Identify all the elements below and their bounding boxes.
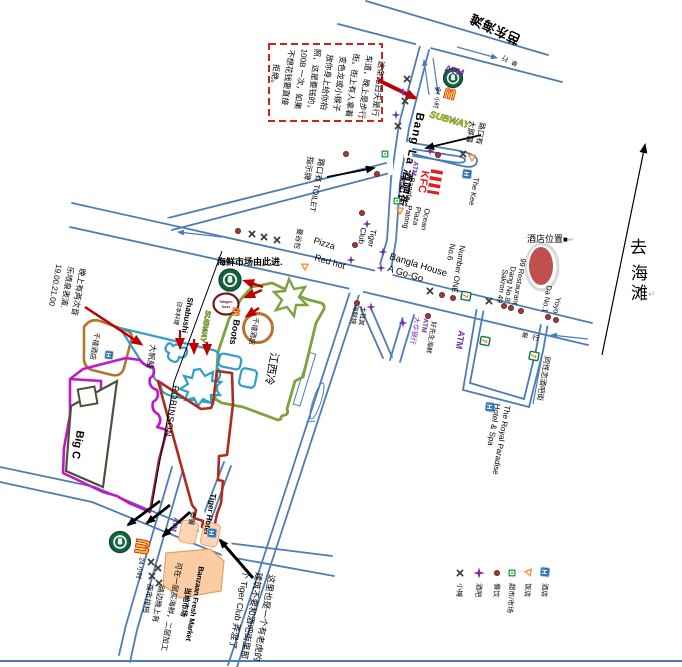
svg-text:海: 海 — [631, 264, 648, 283]
svg-text:滩: 滩 — [631, 284, 648, 303]
svg-text:酒吧: 酒吧 — [474, 583, 483, 598]
svg-text:Dazs: Dazs — [222, 305, 230, 309]
svg-text:去: 去 — [630, 238, 647, 257]
svg-text:↵: ↵ — [648, 289, 656, 299]
svg-text:酒店位置■↵: 酒店位置■↵ — [527, 233, 574, 244]
svg-text:海鲜市场由此进.: 海鲜市场由此进. — [217, 256, 283, 267]
svg-text:Häagen: Häagen — [220, 300, 233, 304]
